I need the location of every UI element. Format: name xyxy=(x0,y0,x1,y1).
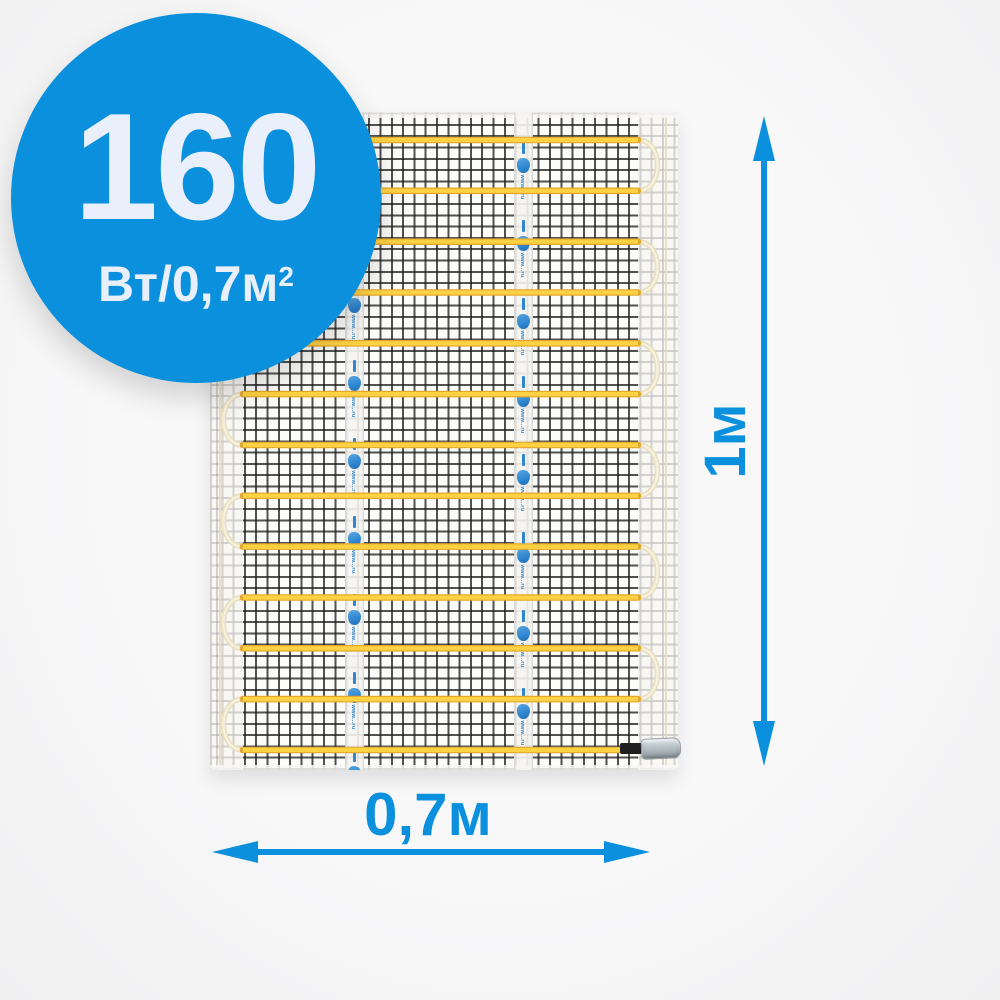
arrow-down-icon xyxy=(753,721,775,766)
height-dimension-label: 1м xyxy=(695,361,757,521)
badge-unit-base: Вт/0,7м xyxy=(98,256,278,312)
width-dimension-label: 0,7м xyxy=(318,786,538,848)
badge-power-value: 160 xyxy=(74,91,319,243)
cable-splice-sleeve-icon xyxy=(641,737,682,760)
arrow-shaft xyxy=(253,849,609,855)
cable-connector-icon xyxy=(620,743,642,754)
product-image-canvas: www...ruwww...ruwww...ruwww...ruwww...ru… xyxy=(0,0,1000,1000)
badge-power-unit: Вт/0,7м2 xyxy=(98,259,294,309)
arrow-left-icon xyxy=(212,841,258,863)
arrow-shaft xyxy=(761,156,767,724)
badge-unit-exponent: 2 xyxy=(278,261,294,292)
arrow-up-icon xyxy=(753,116,775,161)
power-badge: 160 Вт/0,7м2 xyxy=(11,13,381,383)
arrow-right-icon xyxy=(604,841,650,863)
